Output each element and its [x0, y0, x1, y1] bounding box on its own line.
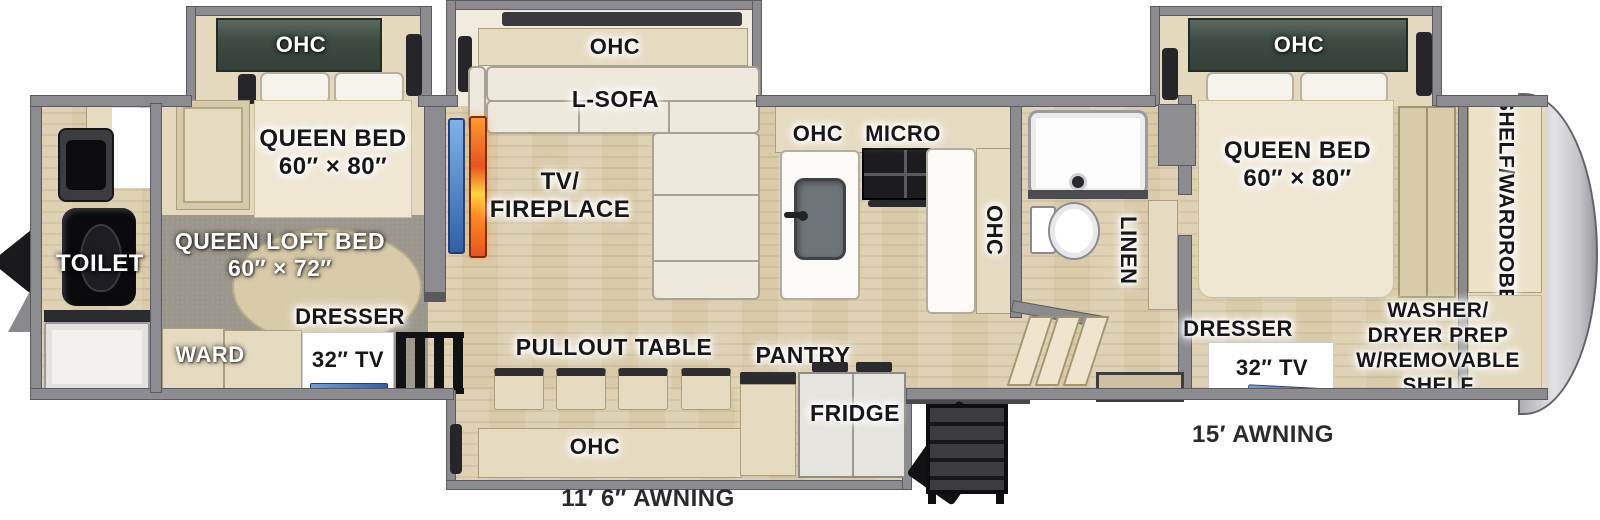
rear-slide-wall-left — [186, 6, 196, 106]
living-slide-topper — [502, 12, 742, 26]
shower — [1028, 110, 1148, 196]
front-bed-label: QUEEN BED 60″ × 80″ — [1200, 134, 1395, 196]
dinette-slide-window — [450, 424, 462, 474]
living-slide-wall-left — [446, 0, 456, 106]
rear-slide-wall-top — [186, 6, 432, 16]
rear-wardrobe — [176, 100, 250, 210]
front-awning-label: 15′ AWNING — [1148, 420, 1378, 450]
fridge-handle-left — [812, 362, 848, 372]
front-slide-window-right — [1416, 32, 1432, 96]
front-closet-doors — [1398, 106, 1456, 298]
rear-slide-window-right — [406, 34, 422, 96]
rear-bath-door-opening — [112, 108, 152, 188]
rv-floorplan: TOILET OHC QUEEN BED 60″ × 80″ QUEEN LOF… — [0, 0, 1600, 520]
rear-shower — [44, 322, 150, 392]
entry-steps-leg-left — [928, 494, 936, 504]
rear-ohc-label: OHC — [246, 30, 356, 60]
front-nightstand — [1158, 104, 1196, 166]
sofa-label: L-SOFA — [548, 86, 683, 114]
rear-tv-label: 32″ TV — [302, 346, 394, 374]
top-wall-front — [1436, 95, 1548, 107]
dinette-chair-3 — [618, 368, 668, 410]
rear-dresser-label: DRESSER — [280, 304, 420, 330]
front-slide-wall-right — [1432, 6, 1442, 106]
fridge-label: FRIDGE — [790, 400, 920, 428]
kitchen-counter-right — [926, 148, 976, 314]
pantry-label: PANTRY — [738, 342, 868, 370]
shower-front-band — [1028, 190, 1148, 199]
kitchen-ohc-label: OHC — [786, 120, 850, 148]
front-tv-label: 32″ TV — [1212, 354, 1332, 382]
front-ohc-label: OHC — [1244, 30, 1354, 60]
top-wall-mid2 — [756, 95, 1156, 107]
top-wall-rear — [30, 95, 192, 107]
door-side-awning-label: 11′ 6″ AWNING — [498, 484, 798, 514]
linen-cabinet — [1148, 200, 1178, 310]
sofa-chaise — [652, 132, 760, 300]
front-dresser-label: DRESSER — [1168, 316, 1308, 342]
bath-sink-basin — [66, 140, 106, 190]
front-slide-wall-left — [1150, 6, 1160, 106]
top-wall-mid1 — [418, 95, 458, 107]
shelf-wardrobe-label: SHELF/ WARDROBE — [1474, 116, 1536, 284]
bath-bedroom-divider-wall — [150, 103, 162, 393]
loft-stairs-railing — [396, 332, 464, 394]
dinette-chair-2 — [556, 368, 606, 410]
rear-wall — [30, 95, 42, 400]
kitchen-bath-wall — [1010, 103, 1022, 318]
dinette-chair-4 — [681, 368, 731, 410]
living-ohc-label: OHC — [560, 32, 670, 62]
tv-fireplace-label: TV/ FIREPLACE — [478, 164, 642, 228]
bottom-wall-rear — [30, 388, 454, 400]
tv-wall-endcap — [424, 292, 446, 302]
shower-ledge — [44, 310, 150, 322]
ward-label: WARD — [150, 342, 270, 368]
linen-label: LINEN — [1112, 202, 1144, 298]
shower-head — [1072, 176, 1084, 188]
front-slide-window-left — [1162, 48, 1178, 100]
bath-toilet-bowl — [1048, 202, 1100, 260]
dinette-ohc-label: OHC — [540, 432, 650, 462]
tv-wall — [424, 103, 446, 301]
bottom-wall-front — [906, 388, 1548, 400]
kitchen-micro-label: MICRO — [858, 120, 948, 148]
dinette-chair-1 — [494, 368, 544, 410]
living-tv — [448, 118, 465, 254]
entry-steps — [926, 404, 1008, 494]
fridge-handle-right — [856, 362, 892, 372]
toilet-label: TOILET — [40, 250, 160, 278]
pantry-cabinet — [740, 384, 796, 476]
front-queen-bed — [1198, 100, 1394, 298]
loft-bed-label: QUEEN LOFT BED 60″ × 72″ — [162, 224, 398, 286]
entry-steps-leg-right — [996, 494, 1004, 504]
pullout-table-label: PULLOUT TABLE — [488, 334, 740, 362]
kitchen-ohc-side-label: OHC — [980, 198, 1008, 262]
kitchen-faucet-base — [798, 211, 808, 221]
rear-bed-label: QUEEN BED 60″ × 80″ — [240, 122, 426, 184]
front-slide-wall-top — [1150, 6, 1442, 16]
living-slide-wall-top — [446, 0, 762, 10]
